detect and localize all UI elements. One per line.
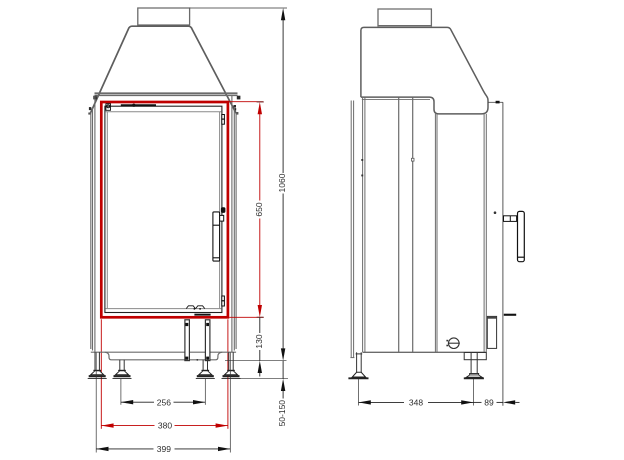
svg-text:348: 348 — [409, 397, 423, 407]
svg-text:1060: 1060 — [277, 173, 287, 192]
svg-text:399: 399 — [157, 444, 171, 454]
svg-text:89: 89 — [484, 397, 494, 407]
svg-text:380: 380 — [158, 421, 172, 431]
svg-text:256: 256 — [157, 397, 171, 407]
svg-text:50-150: 50-150 — [277, 400, 287, 427]
svg-text:130: 130 — [254, 334, 264, 348]
svg-text:650: 650 — [254, 202, 264, 216]
